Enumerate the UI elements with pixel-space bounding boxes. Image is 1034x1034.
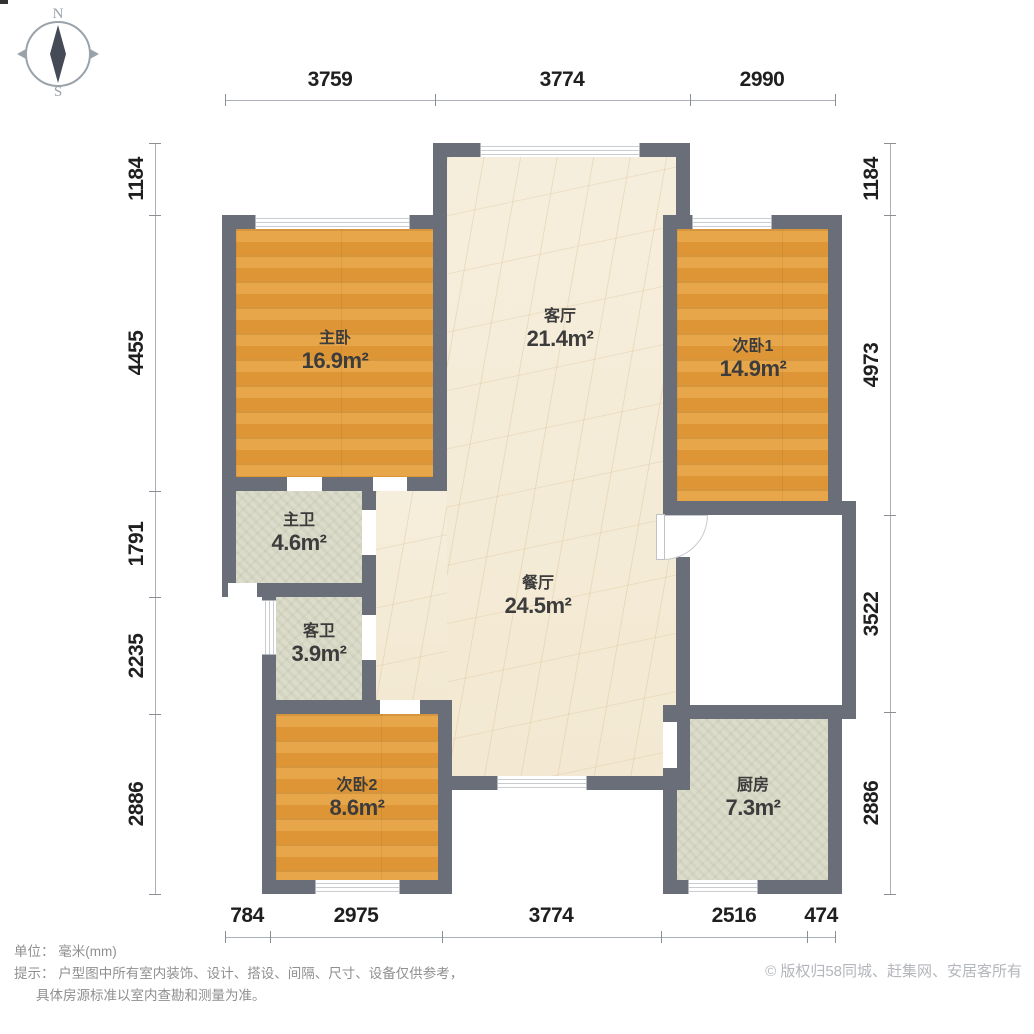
dimension-line	[890, 143, 891, 894]
hint-note-line2: 具体房源标准以室内查勘和测量为准。	[36, 984, 266, 1004]
unit-note: 单位： 毫米(mm)	[14, 940, 117, 960]
dimension-tick	[149, 894, 161, 895]
unit-value: 毫米(mm)	[58, 944, 116, 959]
room-area: 24.5m²	[505, 594, 572, 619]
dimension-tick	[149, 491, 161, 492]
floorplan-canvas: N S	[0, 0, 1034, 1034]
room-area: 14.9m²	[720, 357, 787, 382]
dimension-label: 1184	[125, 129, 149, 229]
room-area: 16.9m²	[302, 349, 369, 374]
dimension-label: 3522	[860, 564, 884, 664]
dimension-tick	[149, 215, 161, 216]
dimension-tick	[149, 143, 161, 144]
dimension-label: 2235	[125, 606, 149, 706]
room-area: 7.3m²	[726, 796, 781, 821]
room-area: 21.4m²	[527, 327, 594, 352]
dimension-tick	[884, 515, 896, 516]
room-area: 4.6m²	[272, 531, 327, 556]
room-area: 8.6m²	[330, 796, 385, 821]
room-label-bedroom1: 次卧1 14.9m²	[720, 338, 787, 382]
room-label-kitchen: 厨房 7.3m²	[726, 777, 781, 821]
footer-notes: 单位： 毫米(mm) 提示： 户型图中所有室内装饰、设计、搭设、间隔、尺寸、设备…	[0, 936, 1034, 1034]
dimension-line	[155, 143, 156, 894]
hint-label: 提示：	[14, 966, 55, 981]
room-area: 3.9m²	[292, 642, 347, 667]
dimension-label: 1791	[125, 494, 149, 594]
dimension-label: 2516	[684, 904, 784, 928]
room-name: 客卫	[292, 623, 347, 641]
dimension-tick	[884, 712, 896, 713]
dimension-label: 3774	[501, 904, 601, 928]
dimension-chain-left: 1184 4455 1791 2235 2886	[0, 0, 220, 1034]
dimension-tick	[149, 714, 161, 715]
dimension-label: 2886	[125, 754, 149, 854]
room-label-bedroom2: 次卧2 8.6m²	[330, 777, 385, 821]
copyright-note: © 版权归58同城、赶集网、安居客所有	[765, 960, 1022, 981]
dimension-label: 4455	[125, 303, 149, 403]
room-name: 主卫	[272, 512, 327, 530]
dimension-tick	[884, 215, 896, 216]
room-name: 次卧1	[720, 338, 787, 356]
dimension-label: 4973	[860, 315, 884, 415]
hint-note-line1: 提示： 户型图中所有室内装饰、设计、搭设、间隔、尺寸、设备仅供参考，	[14, 962, 463, 982]
room-label-master-bedroom: 主卧 16.9m²	[302, 330, 369, 374]
room-label-living-room: 客厅 21.4m²	[527, 308, 594, 352]
dimension-label: 1184	[860, 129, 884, 229]
dimension-chain-right: 1184 4973 3522 2886	[820, 0, 1034, 1034]
room-name: 厨房	[726, 777, 781, 795]
room-name: 客厅	[527, 308, 594, 326]
room-label-master-bath: 主卫 4.6m²	[272, 512, 327, 556]
unit-label: 单位：	[14, 944, 55, 959]
room-name: 次卧2	[330, 777, 385, 795]
dimension-tick	[884, 143, 896, 144]
room-label-dining-room: 餐厅 24.5m²	[505, 575, 572, 619]
dimension-tick	[149, 597, 161, 598]
hint-text: 户型图中所有室内装饰、设计、搭设、间隔、尺寸、设备仅供参考，	[58, 966, 463, 981]
dimension-label: 2975	[306, 904, 406, 928]
room-name: 主卧	[302, 330, 369, 348]
dimension-tick	[884, 894, 896, 895]
room-label-guest-bath: 客卫 3.9m²	[292, 623, 347, 667]
room-name: 餐厅	[505, 575, 572, 593]
dimension-label: 2886	[860, 753, 884, 853]
